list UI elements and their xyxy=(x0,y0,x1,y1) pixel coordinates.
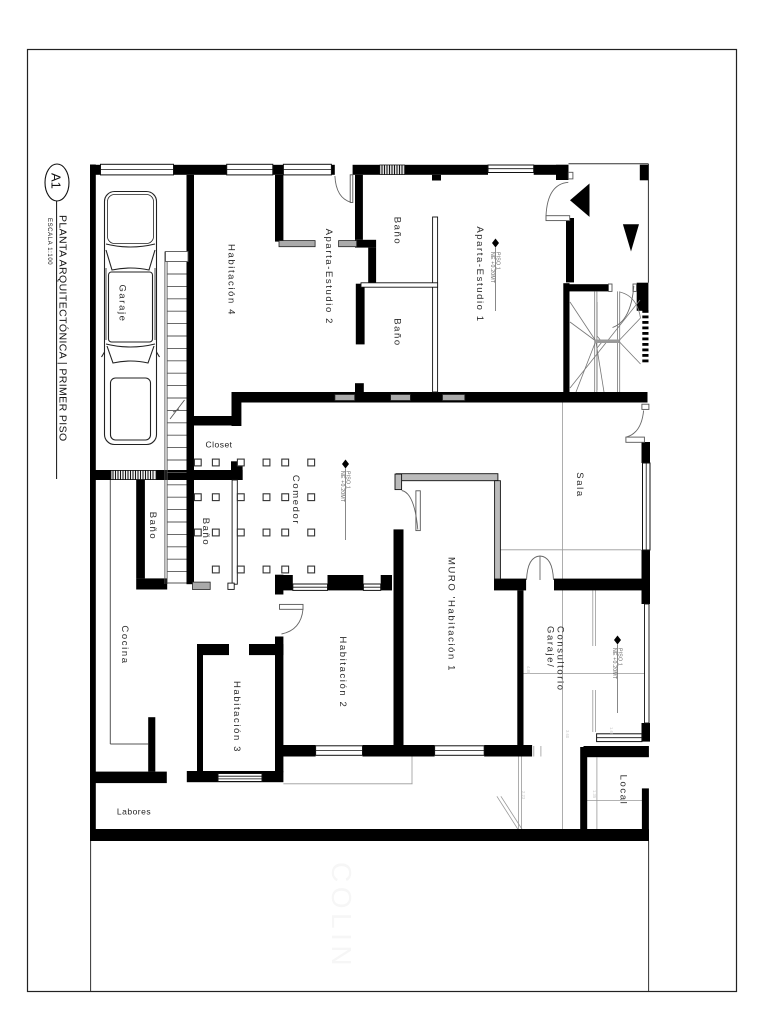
svg-text:NE +0.20MT: NE +0.20MT xyxy=(339,471,345,503)
svg-text:Habitación 2: Habitación 2 xyxy=(337,636,348,708)
svg-text:2.23: 2.23 xyxy=(521,791,526,800)
svg-text:Garaje/: Garaje/ xyxy=(545,626,556,668)
svg-text:MURO 'Habitación 1: MURO 'Habitación 1 xyxy=(445,557,456,672)
svg-text:Aparta-Estudio 2: Aparta-Estudio 2 xyxy=(323,229,334,325)
svg-text:Aparta-Estudio 1: Aparta-Estudio 1 xyxy=(474,226,485,322)
svg-text:ESCALA 1:100: ESCALA 1:100 xyxy=(46,218,52,265)
svg-text:PLANTA ARQUITECTÓNICA | PRIMER: PLANTA ARQUITECTÓNICA | PRIMER PISO xyxy=(57,215,70,442)
svg-text:1.35: 1.35 xyxy=(592,790,597,799)
svg-text:Habitación 3: Habitación 3 xyxy=(231,681,242,753)
svg-text:Labores: Labores xyxy=(117,807,151,817)
svg-text:Baño: Baño xyxy=(392,217,403,246)
svg-text:3.60: 3.60 xyxy=(565,730,570,739)
svg-text:Local: Local xyxy=(618,775,629,806)
svg-text:Comedor: Comedor xyxy=(290,475,301,525)
svg-text:Baño: Baño xyxy=(200,518,211,547)
svg-text:4.88: 4.88 xyxy=(526,666,531,675)
svg-text:A1: A1 xyxy=(49,173,64,189)
svg-text:Consultorio: Consultorio xyxy=(555,626,566,692)
svg-text:Closet: Closet xyxy=(205,440,232,450)
svg-text:NE +0.20MT: NE +0.20MT xyxy=(489,252,495,284)
svg-text:Baño: Baño xyxy=(147,512,158,541)
svg-text:COLIN: COLIN xyxy=(326,862,357,970)
svg-text:Baño: Baño xyxy=(392,318,403,347)
svg-text:Garaje: Garaje xyxy=(117,284,128,322)
svg-text:NE +0.20MT: NE +0.20MT xyxy=(611,648,617,680)
svg-text:1.66: 1.66 xyxy=(609,727,614,736)
svg-text:Cocina: Cocina xyxy=(119,625,130,664)
svg-text:Sala: Sala xyxy=(574,472,585,497)
svg-text:Habitación 4: Habitación 4 xyxy=(226,244,237,316)
